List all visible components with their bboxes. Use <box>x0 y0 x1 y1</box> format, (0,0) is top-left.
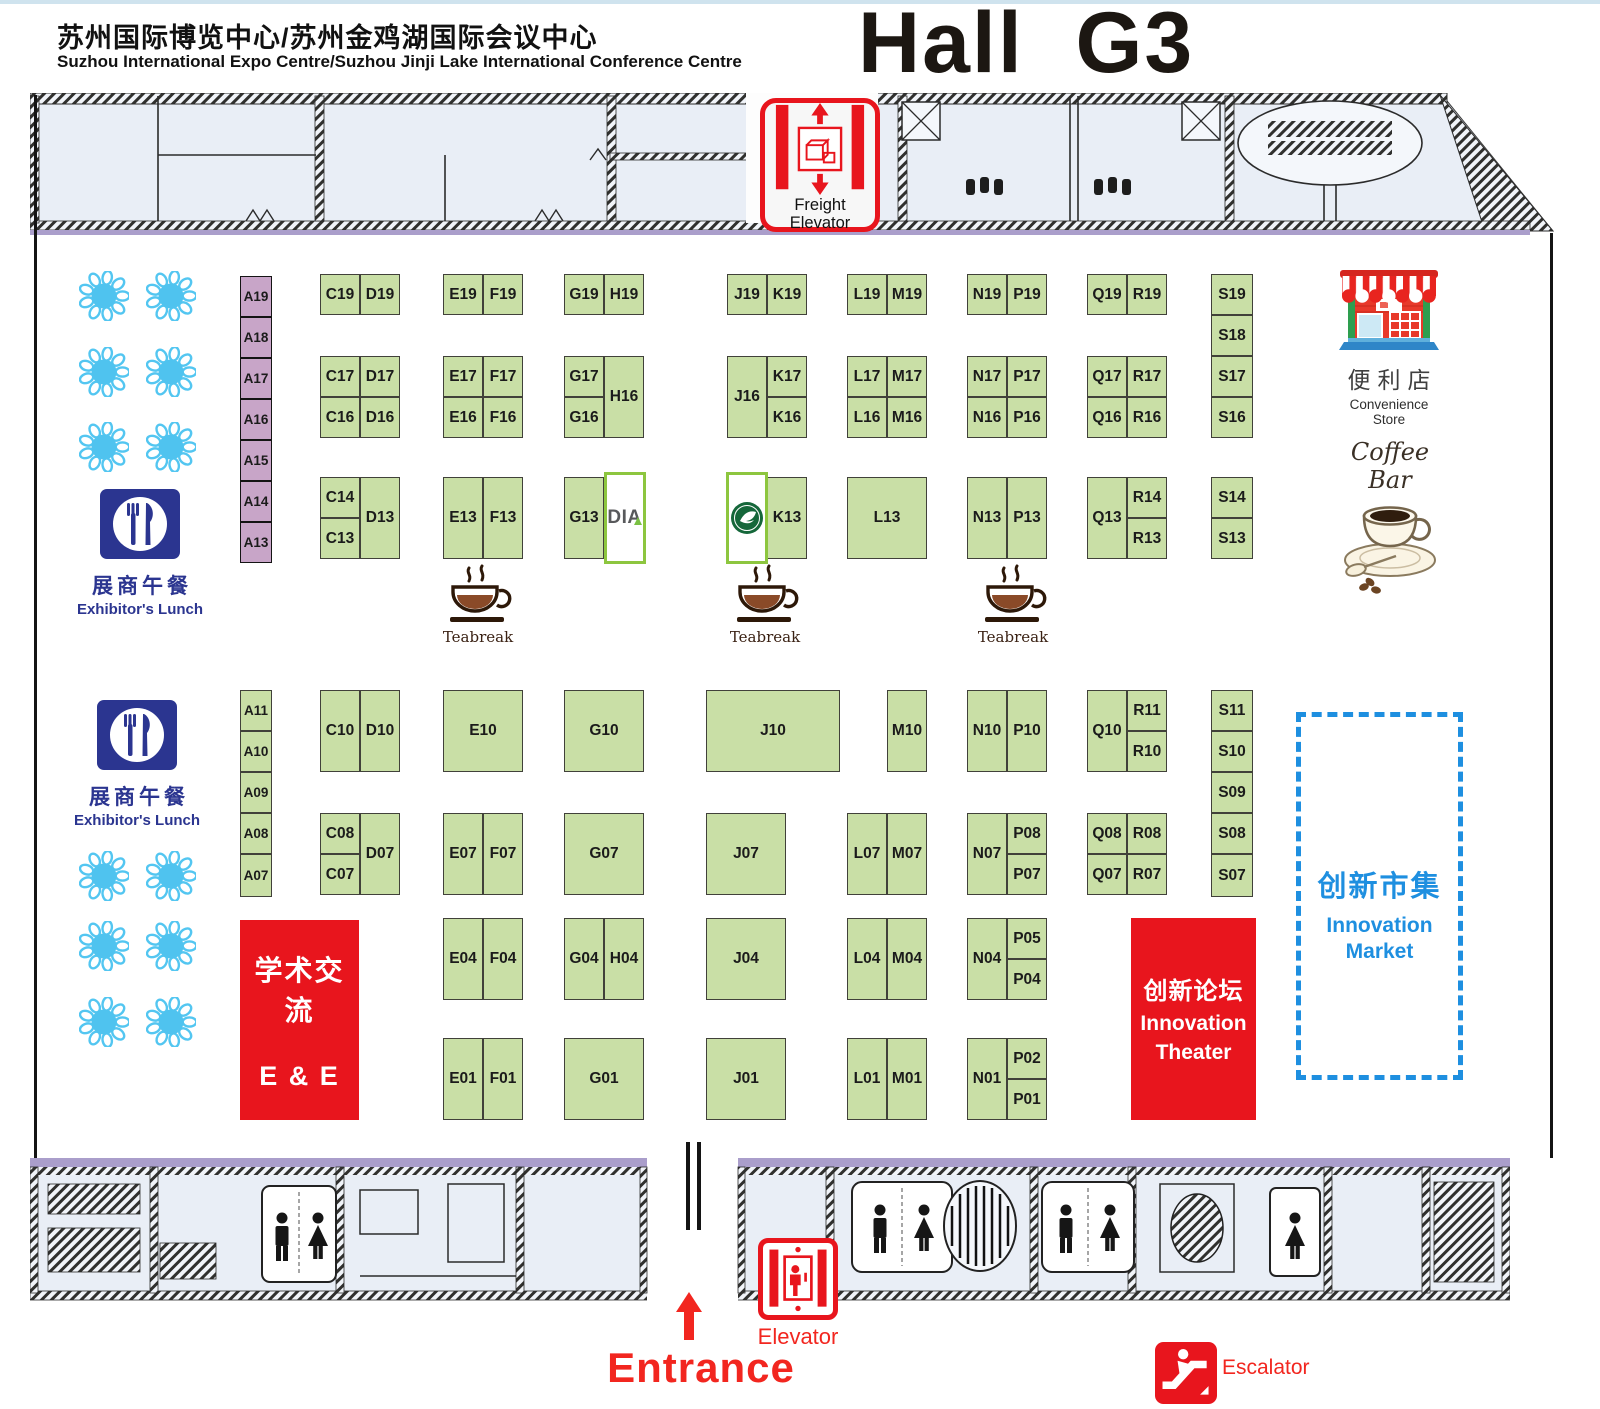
market-label-en: Innovation Market <box>1301 913 1458 966</box>
exhibitors-lunch-icon <box>97 700 177 770</box>
convenience-store-label-zh: 便利店 <box>1336 361 1442 395</box>
escalator-label: Escalator <box>1222 1356 1310 1380</box>
freight-elevator-icon: Freight Elevator <box>760 98 880 232</box>
academic-area-label-zh: 学术交流 <box>240 949 359 1029</box>
market-label-zh: 创新市集 <box>1301 863 1458 905</box>
escalator-icon <box>1155 1342 1217 1409</box>
exhibitors-lunch-icon <box>100 489 180 559</box>
coffee-cup-icon <box>1334 494 1446 594</box>
theater-label-zh: 创新论坛 <box>1144 971 1244 1006</box>
freight-elevator-label: Freight Elevator <box>765 197 875 233</box>
theater-label-en: InnovationTheater <box>1140 1010 1246 1067</box>
coffee-bar-label: Coffee Bar <box>1334 438 1446 494</box>
elevator-glyph <box>767 1246 829 1312</box>
entrance-label[interactable]: Entrance <box>596 1344 806 1392</box>
convenience-store-icon <box>1336 268 1442 352</box>
academic-area-label-en: E & E <box>259 1061 340 1092</box>
exhibitors-lunch-station: 展商午餐Exhibitor's Lunch <box>58 489 222 618</box>
escalator-glyph <box>1155 1342 1217 1404</box>
entrance-arrow-icon <box>676 1292 702 1340</box>
hall-floor-plan: 苏州国际博览中心/苏州金鸡湖国际会议中心 Suzhou Internationa… <box>0 0 1600 1409</box>
elevator-label: Elevator <box>735 1324 861 1350</box>
academic-exchange-area[interactable]: 学术交流 E & E <box>240 920 359 1120</box>
coffee-bar: Coffee Bar <box>1334 438 1446 599</box>
convenience-store: 便利店 Convenience Store <box>1336 268 1442 427</box>
convenience-store-label-en: Convenience Store <box>1336 397 1442 427</box>
elevator-icon <box>758 1238 838 1320</box>
exhibitors-lunch-label-zh: 展商午餐 <box>58 570 222 600</box>
exhibitors-lunch-label-en: Exhibitor's Lunch <box>58 601 222 618</box>
exhibitors-lunch-label-en: Exhibitor's Lunch <box>55 812 219 829</box>
exhibitors-lunch-label-zh: 展商午餐 <box>55 781 219 811</box>
innovation-theater-area[interactable]: 创新论坛 InnovationTheater <box>1131 918 1256 1120</box>
market-label: 创新市集 Innovation Market <box>1301 863 1458 966</box>
innovation-market-area[interactable]: 创新市集 Innovation Market <box>1296 712 1463 1080</box>
freight-elevator-glyph <box>766 103 874 195</box>
exhibitors-lunch-station: 展商午餐Exhibitor's Lunch <box>55 700 219 829</box>
